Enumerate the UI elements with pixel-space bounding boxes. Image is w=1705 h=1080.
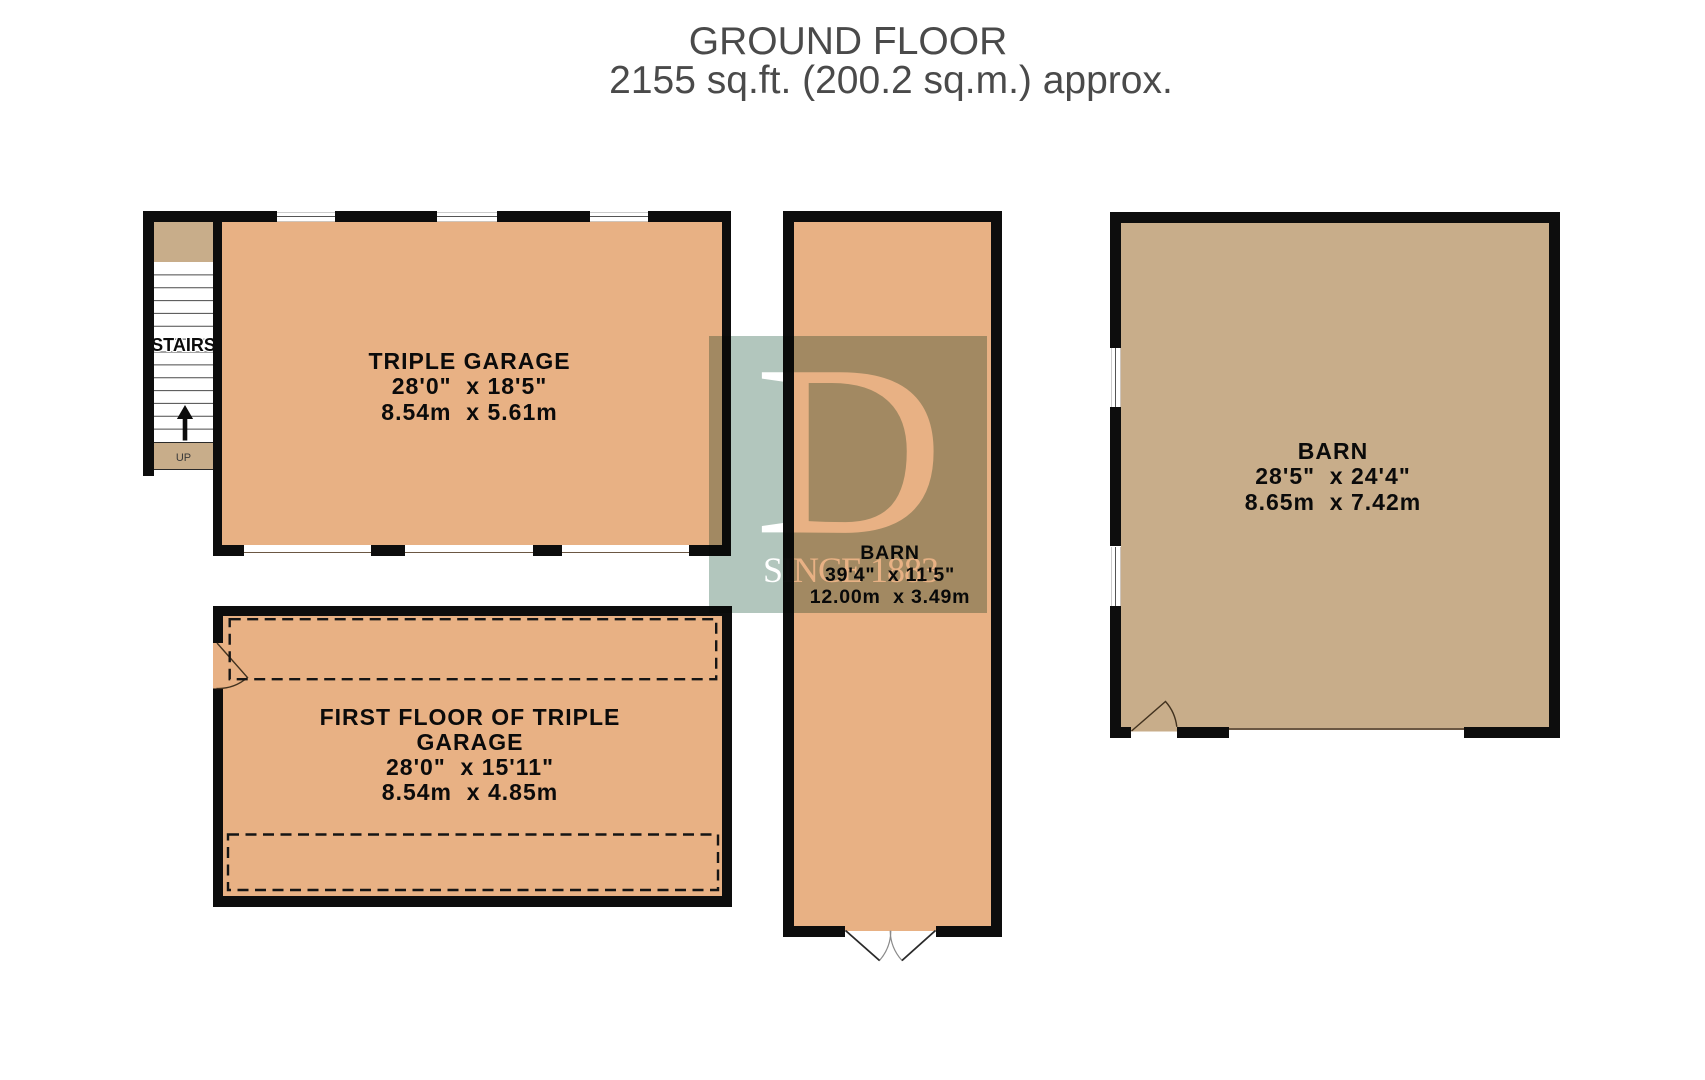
svg-text:D: D	[754, 336, 944, 585]
svg-text:SINCE 1883: SINCE 1883	[763, 550, 938, 590]
